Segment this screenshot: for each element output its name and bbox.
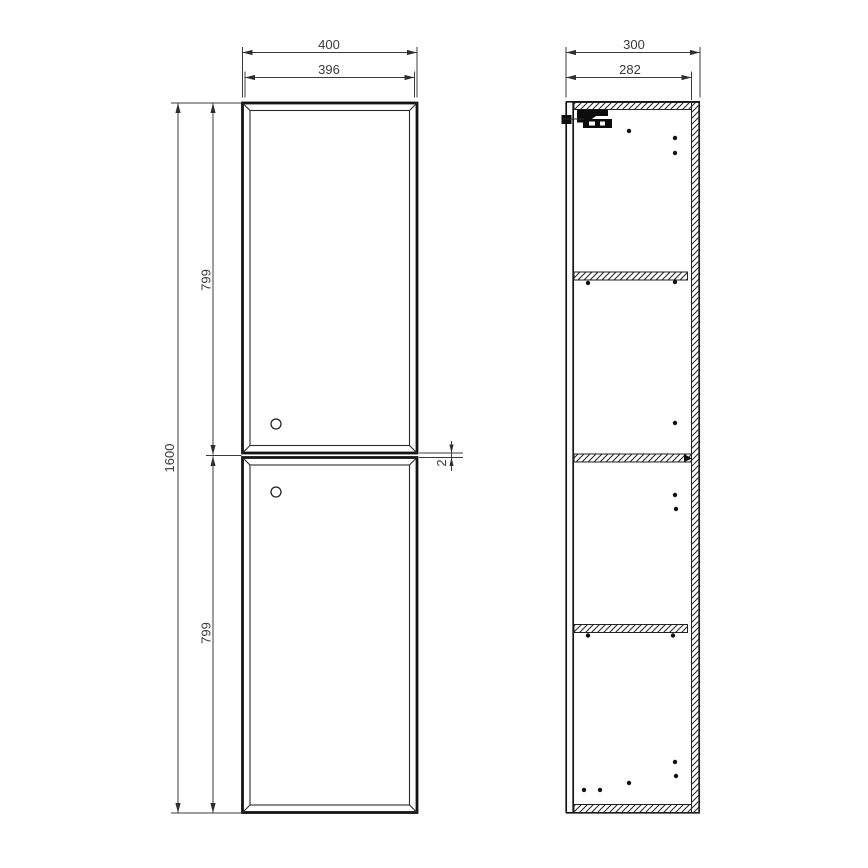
hinge-cup [583,119,612,128]
dim-side-outer-depth-label: 300 [623,37,645,52]
drawing-page: 400 396 1600 799 799 2 [0,0,868,868]
shelf-upper-section [574,272,688,280]
upper-door [243,103,418,453]
drill-hole [627,129,631,133]
shelf-pin-hole [586,281,590,285]
shelf-lower-section [574,625,688,633]
drill-hole [673,421,677,425]
top-panel-section [574,103,692,110]
front-view: 400 396 1600 799 799 2 [162,37,463,813]
shelves [574,272,692,633]
dim-door-gap-label: 2 [434,459,449,466]
dim-lower-door-height-label: 799 [199,622,214,644]
shelf-middle-fixed-section [574,454,692,462]
dim-front-door-width-label: 396 [318,62,340,77]
side-depth-dimensions: 300 282 [566,37,700,100]
hinge-detail [562,110,613,129]
drill-hole [673,151,677,155]
arrow-up [449,458,453,467]
hinge-slot [600,122,605,126]
technical-drawing-canvas: 400 396 1600 799 799 2 [0,0,868,868]
dim-side-inner-depth-label: 282 [619,62,641,77]
drill-hole [674,507,678,511]
lower-door-outline [243,458,418,813]
dim-front-outer-width-label: 400 [318,37,340,52]
lower-door [243,458,418,813]
upper-door-outline [243,103,418,453]
handle-hole-lower [271,487,281,497]
shelf-pin-hole [671,633,675,637]
drill-hole [673,493,677,497]
back-panel-section [692,103,700,813]
drill-hole [627,781,631,785]
front-width-dimensions: 400 396 [243,37,418,98]
shelf-pin-hole [673,280,677,284]
drill-hole [598,788,602,792]
drill-hole [673,136,677,140]
side-view: 300 282 [562,37,701,813]
drill-hole [674,774,678,778]
bottom-panel-section [574,805,692,813]
dim-total-height-label: 1600 [162,444,177,473]
door-gap-dimension: 2 [419,441,463,471]
shelf-pin-hole [586,633,590,637]
handle-hole-upper [271,419,281,429]
drill-hole [582,788,586,792]
arrow-down [449,445,453,454]
hinge-arm [577,110,608,117]
dim-upper-door-height-label: 799 [199,269,214,291]
hinge-slot [589,122,595,126]
front-height-dimensions: 1600 799 799 [162,103,242,813]
drill-hole [673,760,677,764]
